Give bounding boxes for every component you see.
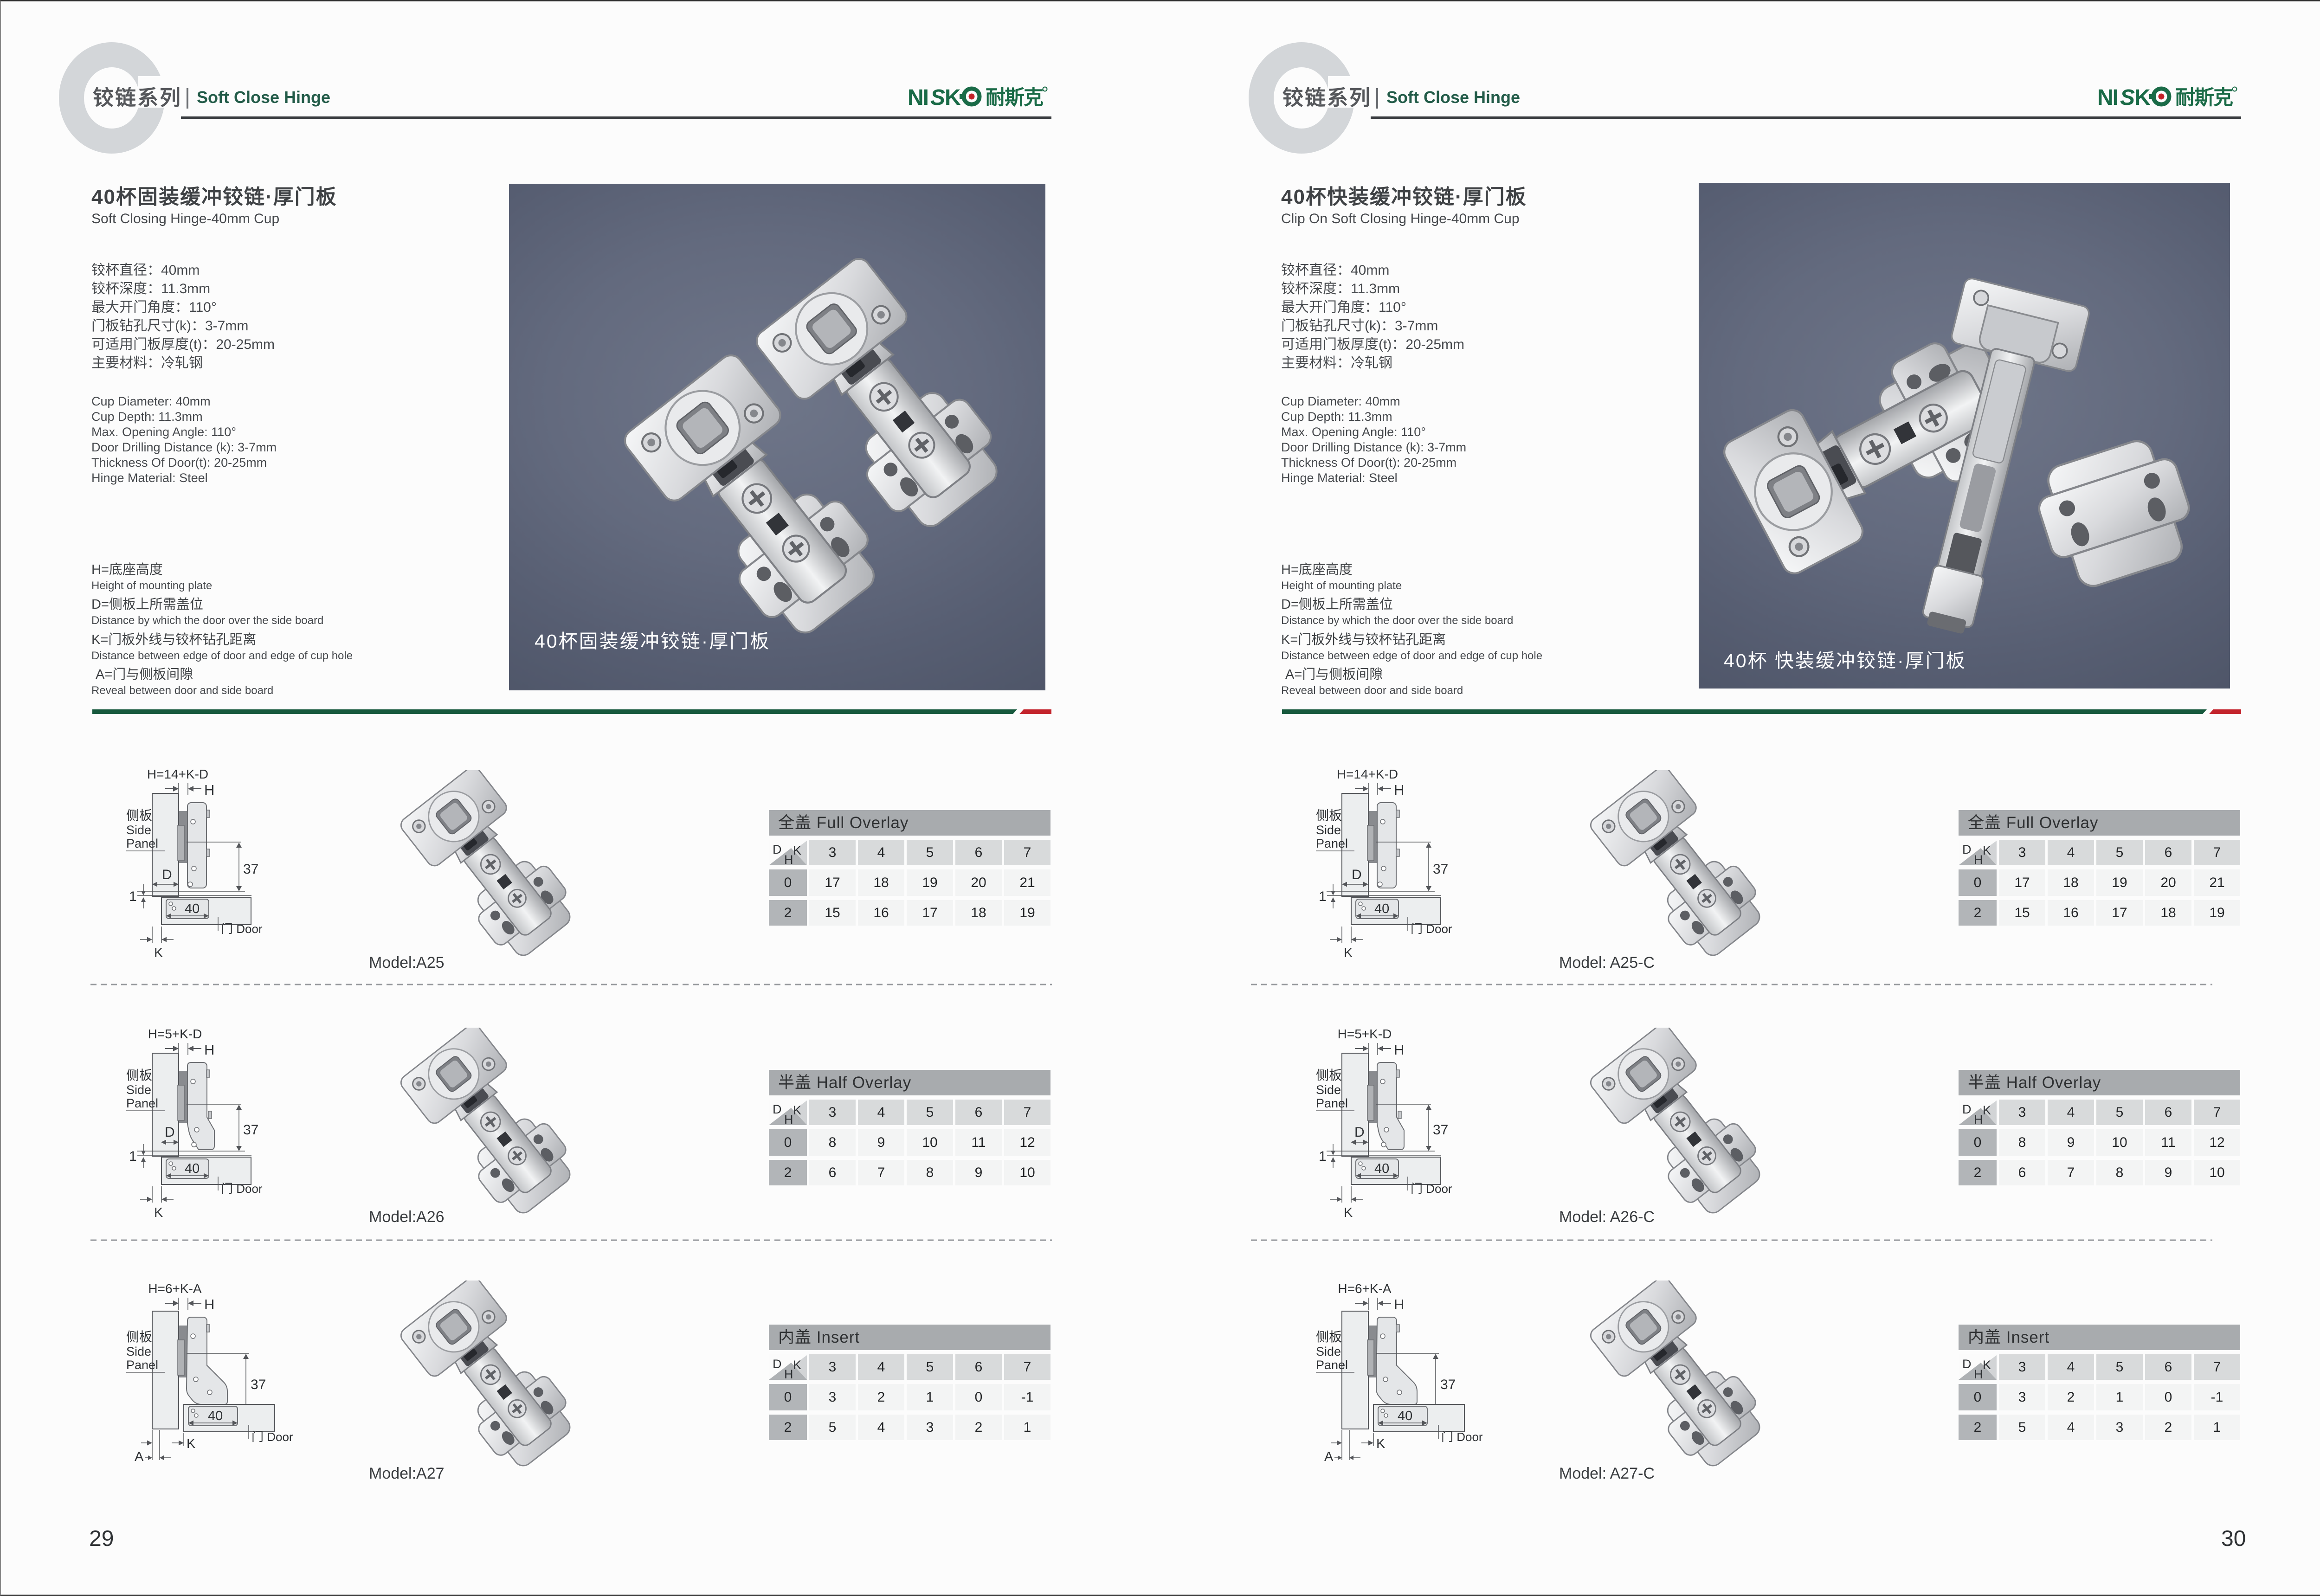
svg-text:K: K bbox=[945, 85, 961, 110]
svg-text:S: S bbox=[930, 85, 945, 110]
svg-text:S: S bbox=[2120, 85, 2135, 110]
svg-text:K: K bbox=[2134, 85, 2151, 110]
svg-text:耐斯克: 耐斯克 bbox=[986, 87, 1043, 109]
svg-text:NI: NI bbox=[2097, 85, 2118, 110]
svg-text:NI: NI bbox=[908, 85, 928, 110]
svg-text:耐斯克: 耐斯克 bbox=[2175, 87, 2233, 109]
